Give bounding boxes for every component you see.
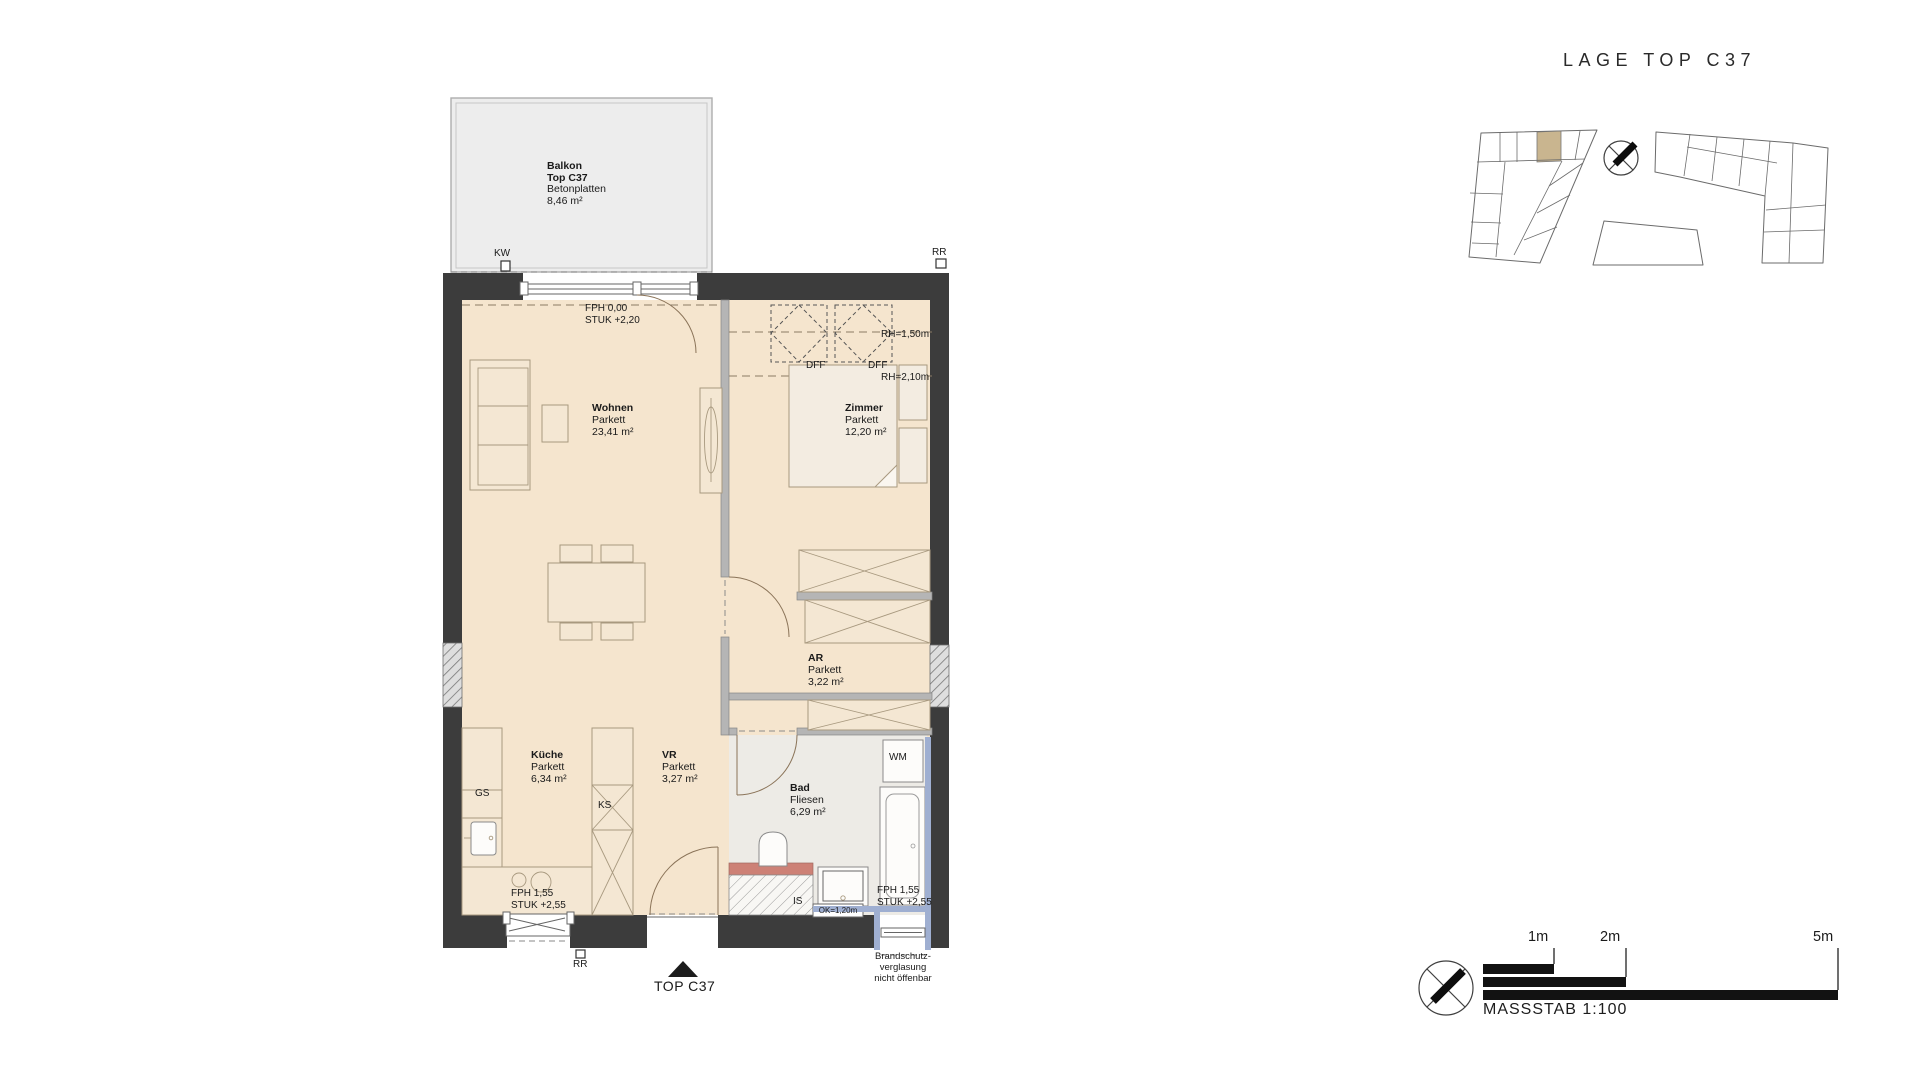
- chair: [560, 545, 592, 562]
- dining-table: [548, 563, 645, 622]
- fph-line: FPH 0,00: [585, 303, 640, 315]
- nightstand: [899, 428, 927, 483]
- site-unit-highlight: [1537, 131, 1561, 162]
- room-label-ar: AR Parkett 3,22 m²: [808, 652, 844, 688]
- scale-bar-5m: [1483, 990, 1838, 1000]
- room-name: Küche: [531, 749, 567, 761]
- side-table: [542, 405, 568, 442]
- room-floor: Parkett: [662, 761, 698, 773]
- marker-gs: GS: [475, 788, 489, 799]
- level-label-top: FPH 0,00 STUK +2,20: [585, 303, 640, 327]
- chair: [560, 623, 592, 640]
- stuk-line: STUK +2,20: [585, 315, 640, 327]
- stuk-line: STUK +2,55: [877, 897, 932, 909]
- roof-height-lower: RH=2,10m: [881, 372, 929, 383]
- floorplan-drawing: [0, 0, 1920, 1080]
- room-area: 3,27 m²: [662, 773, 698, 785]
- room-floor: Parkett: [845, 414, 886, 426]
- scale-label-5m: 5m: [1813, 929, 1833, 945]
- room-name: Zimmer: [845, 402, 886, 414]
- level-label-bottom-left: FPH 1,55 STUK +2,55: [511, 888, 566, 912]
- fph-line: FPH 1,55: [877, 885, 932, 897]
- scale-label-1m: 1m: [1528, 929, 1548, 945]
- party-wall-hatch-left: [443, 643, 462, 707]
- rr-bottom-symbol: [576, 950, 585, 958]
- toilet: [759, 832, 787, 866]
- chair: [601, 623, 633, 640]
- site-plan: [1469, 130, 1828, 265]
- room-label-vr: VR Parkett 3,27 m²: [662, 749, 698, 785]
- marker-ok-height: OK=1,20m: [813, 905, 863, 917]
- marker-rr-top: RR: [932, 247, 946, 258]
- party-wall-hatch-right: [930, 645, 949, 707]
- scale-label-2m: 2m: [1600, 929, 1620, 945]
- room-name: VR: [662, 749, 698, 761]
- room-area: 23,41 m²: [592, 426, 633, 438]
- note-line: verglasung: [858, 963, 948, 974]
- room-area: 6,34 m²: [531, 773, 567, 785]
- note-line: nicht öffenbar: [858, 974, 948, 985]
- balcony-surface: Betonplatten: [547, 184, 606, 196]
- marker-kw: KW: [494, 248, 510, 259]
- room-floor: Parkett: [592, 414, 633, 426]
- marker-wm: WM: [889, 752, 907, 763]
- room-name: Bad: [790, 782, 826, 794]
- shaft-hatch: [729, 875, 813, 915]
- room-floor: Fliesen: [790, 794, 826, 806]
- site-building-bottom: [1593, 221, 1703, 265]
- dff-label-right: DFF: [868, 360, 887, 371]
- marker-ks: KS: [598, 800, 611, 811]
- dff-label-left: DFF: [806, 360, 825, 371]
- room-label-bad: Bad Fliesen 6,29 m²: [790, 782, 826, 818]
- entrance-label: TOP C37: [654, 978, 715, 994]
- scale-caption: MASSSTAB 1:100: [1483, 1001, 1627, 1019]
- rr-top-symbol: [936, 259, 946, 268]
- balcony-name: Balkon: [547, 161, 606, 173]
- balcony-label: Balkon Top C37 Betonplatten 8,46 m²: [547, 161, 606, 207]
- site-building-left: [1469, 130, 1597, 263]
- room-area: 6,29 m²: [790, 806, 826, 818]
- scale-bar-1m: [1483, 964, 1554, 974]
- page-title: LAGE TOP C37: [1563, 50, 1756, 71]
- room-area: 3,22 m²: [808, 676, 844, 688]
- scale-bar: [1419, 948, 1838, 1015]
- room-name: Wohnen: [592, 402, 633, 414]
- sofa: [470, 360, 530, 490]
- room-label-kueche: Küche Parkett 6,34 m²: [531, 749, 567, 785]
- fire-glazing-note: Brandschutz- verglasung nicht öffenbar: [858, 952, 948, 984]
- marker-is: IS: [793, 896, 802, 907]
- room-name: AR: [808, 652, 844, 664]
- kitchen-tall-cabinet: [592, 728, 633, 915]
- scale-bar-2m: [1483, 977, 1626, 987]
- room-floor: Parkett: [808, 664, 844, 676]
- kw-symbol: [501, 261, 510, 271]
- roof-height-upper: RH=1,50m: [881, 329, 929, 340]
- room-floor: Parkett: [531, 761, 567, 773]
- site-north-compass: [1604, 141, 1638, 175]
- entrance-triangle-icon: [668, 961, 698, 977]
- room-label-wohnen: Wohnen Parkett 23,41 m²: [592, 402, 633, 438]
- balcony-area: 8,46 m²: [547, 196, 606, 208]
- stuk-line: STUK +2,55: [511, 900, 566, 912]
- room-area: 12,20 m²: [845, 426, 886, 438]
- fph-line: FPH 1,55: [511, 888, 566, 900]
- sink: [471, 822, 496, 855]
- room-label-zimmer: Zimmer Parkett 12,20 m²: [845, 402, 886, 438]
- chair: [601, 545, 633, 562]
- level-label-bottom-right: FPH 1,55 STUK +2,55: [877, 885, 932, 909]
- marker-rr-bottom: RR: [573, 959, 587, 970]
